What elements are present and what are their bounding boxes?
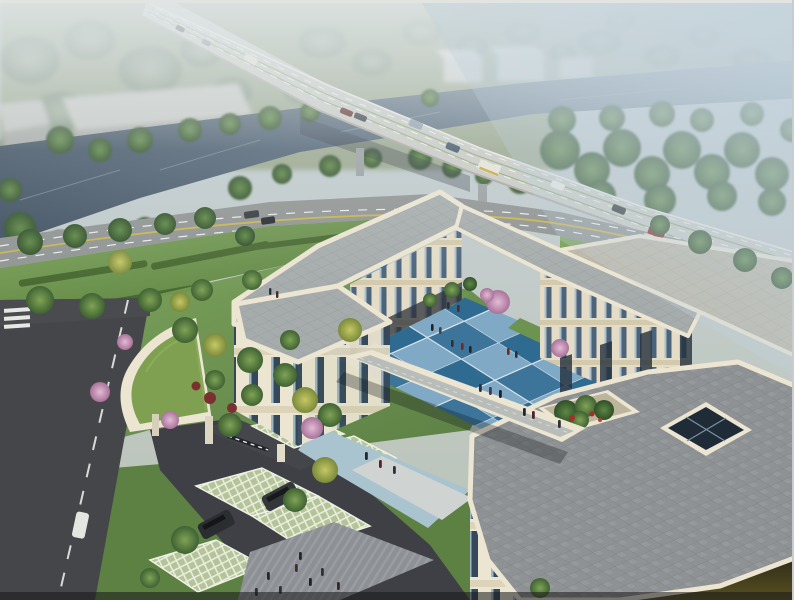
bottom-shadow <box>0 592 800 600</box>
gate-pillar <box>152 414 159 436</box>
frame-top <box>0 0 800 3</box>
crosswalk <box>4 307 30 329</box>
gate-post <box>277 444 285 462</box>
frame-right <box>794 0 800 600</box>
aerial-rendering <box>0 0 800 600</box>
frame-right-edge <box>792 0 794 600</box>
gate-pillar <box>205 416 213 444</box>
rendering-canvas <box>0 0 800 600</box>
